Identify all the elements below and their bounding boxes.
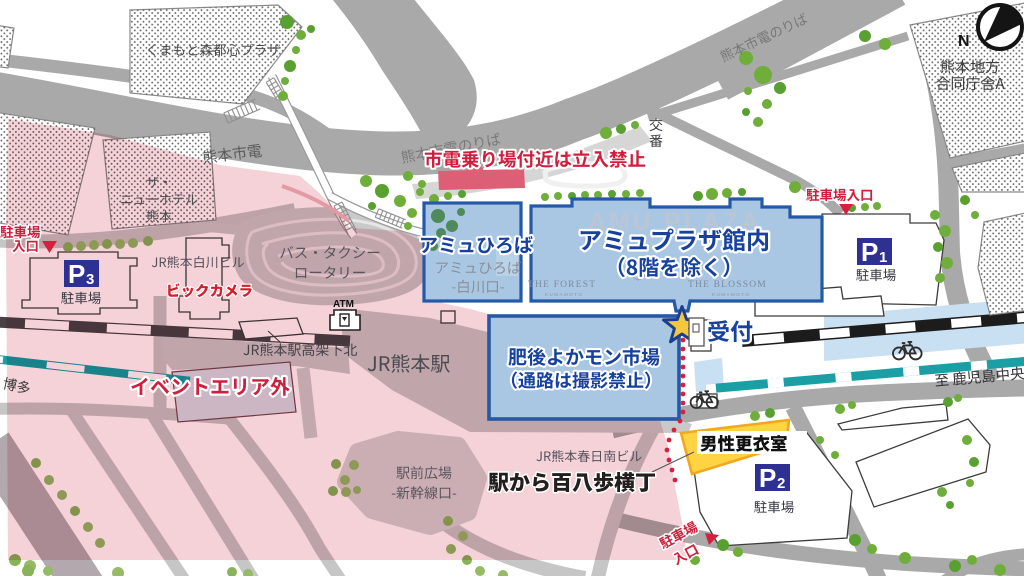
svg-text:KUMAMOTO: KUMAMOTO: [712, 292, 750, 297]
svg-text:THE BLOSSOM: THE BLOSSOM: [688, 280, 767, 290]
svg-text:KUMAMOTO: KUMAMOTO: [545, 292, 583, 297]
svg-text:1: 1: [879, 249, 887, 266]
svg-text:N: N: [958, 33, 970, 50]
svg-text:P: P: [861, 237, 878, 267]
svg-text:THE FOREST: THE FOREST: [528, 280, 596, 290]
svg-text:3: 3: [86, 271, 94, 288]
svg-text:P: P: [68, 259, 85, 289]
svg-text:P: P: [759, 463, 776, 493]
svg-text:ATM: ATM: [333, 299, 354, 310]
svg-text:2: 2: [777, 475, 785, 492]
